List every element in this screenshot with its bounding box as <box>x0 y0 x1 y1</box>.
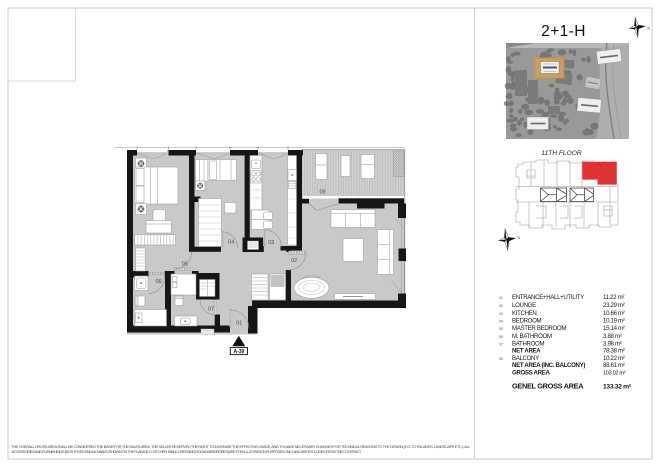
svg-text:GROSS AREA: GROSS AREA <box>512 370 550 377</box>
svg-text:06: 06 <box>156 279 162 285</box>
svg-text:NET AREA: NET AREA <box>512 347 541 354</box>
svg-text:08: 08 <box>320 189 326 195</box>
svg-text:04: 04 <box>499 319 503 323</box>
svg-text:103.02 m²: 103.02 m² <box>603 371 626 377</box>
svg-text:133.32 m²: 133.32 m² <box>603 384 632 391</box>
svg-text:3.88 m²: 3.88 m² <box>603 333 622 340</box>
svg-text:03: 03 <box>268 240 274 246</box>
svg-text:GENEL GROSS AREA: GENEL GROSS AREA <box>512 382 584 391</box>
svg-text:15.14 m²: 15.14 m² <box>603 325 625 332</box>
svg-text:2+1-H: 2+1-H <box>541 23 586 40</box>
svg-text:04: 04 <box>228 239 234 245</box>
svg-text:23.29 m²: 23.29 m² <box>603 302 625 309</box>
svg-text:BALCONY: BALCONY <box>512 355 539 362</box>
svg-text:88.61 m²: 88.61 m² <box>603 362 625 369</box>
svg-text:01: 01 <box>236 321 242 327</box>
svg-text:KITCHEN: KITCHEN <box>512 310 537 317</box>
svg-text:08: 08 <box>499 357 503 361</box>
svg-text:07: 07 <box>499 342 503 346</box>
svg-text:05: 05 <box>182 262 188 268</box>
svg-text:78.38 m²: 78.38 m² <box>603 347 625 354</box>
svg-text:LOUNGE: LOUNGE <box>512 302 536 309</box>
svg-text:ACCESSORIES AND FURNISHINGS (B: ACCESSORIES AND FURNISHINGS (BOTH FIXED … <box>12 449 362 454</box>
svg-text:NET AREA (INC. BALCONY): NET AREA (INC. BALCONY) <box>512 362 585 369</box>
svg-text:02: 02 <box>291 258 297 264</box>
svg-text:MASTER BEDROOM: MASTER BEDROOM <box>512 325 566 332</box>
svg-text:01: 01 <box>499 296 503 300</box>
svg-text:10.22 m²: 10.22 m² <box>603 355 625 362</box>
svg-text:05: 05 <box>499 327 503 331</box>
svg-text:11TH FLOOR: 11TH FLOOR <box>541 150 581 157</box>
svg-text:BEDROOM: BEDROOM <box>512 317 541 324</box>
svg-text:M. BATHROOM: M. BATHROOM <box>512 333 552 340</box>
svg-text:02: 02 <box>499 304 503 308</box>
svg-text:03: 03 <box>499 312 503 316</box>
svg-text:07: 07 <box>208 306 214 312</box>
svg-text:10.66 m²: 10.66 m² <box>603 310 625 317</box>
svg-text:ENTRANCE+HALL+UTILITY: ENTRANCE+HALL+UTILITY <box>512 294 584 301</box>
svg-text:A-39: A-39 <box>233 349 244 355</box>
svg-text:10.19 m²: 10.19 m² <box>603 317 625 324</box>
svg-text:11.22 m²: 11.22 m² <box>603 294 624 301</box>
svg-text:06: 06 <box>499 335 503 339</box>
